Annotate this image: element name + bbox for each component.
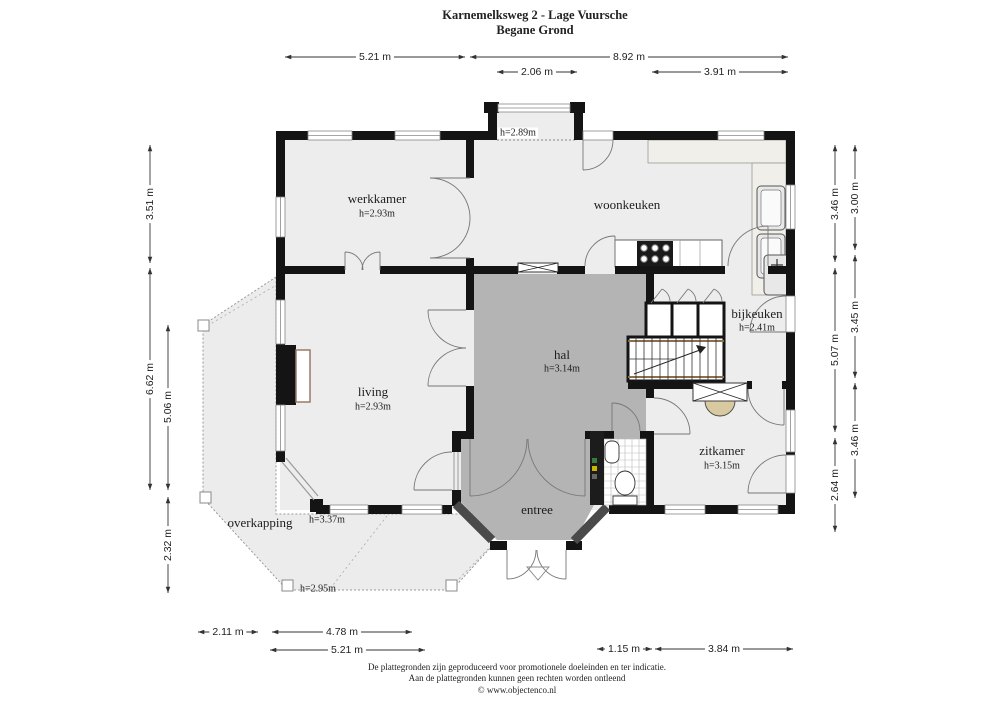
dim-right-inner-3: 2.64 m xyxy=(829,466,841,504)
room-label-overkapping: overkapping xyxy=(228,515,293,531)
dim-right-outer-3: 3.46 m xyxy=(849,421,861,459)
staircase xyxy=(628,337,724,381)
dim-right-outer-2: 3.45 m xyxy=(849,298,861,336)
dim-bottom-5: 3.84 m xyxy=(705,643,743,655)
dim-bottom-1: 2.11 m xyxy=(209,626,246,638)
room-label-living: living xyxy=(358,384,388,400)
dim-bottom-3: 5.21 m xyxy=(328,644,366,656)
dim-left-3: 5.06 m xyxy=(162,388,174,426)
room-height-living: h=2.93m xyxy=(355,402,391,413)
room-height-bijkeuken: h=2.41m xyxy=(739,323,775,334)
footer-line2: Aan de plattegronden kunnen geen rechten… xyxy=(368,673,666,684)
room-label-entree: entree xyxy=(521,502,553,518)
entrance-step xyxy=(527,567,549,580)
bijkeuken-door-opening xyxy=(786,296,795,332)
dim-top-1: 5.21 m xyxy=(356,51,394,63)
dim-left-4: 2.32 m xyxy=(162,526,174,564)
dim-right-inner-2: 5.07 m xyxy=(829,331,841,369)
dim-bottom-4: 1.15 m xyxy=(605,643,643,655)
overkapping-height-edge: h=2.95m xyxy=(300,584,336,595)
hand-basin xyxy=(605,441,619,463)
radiator-hal xyxy=(518,263,558,272)
toilet-room xyxy=(590,431,646,505)
dim-left-1: 3.51 m xyxy=(144,185,156,223)
fireplace-hearth-living xyxy=(296,350,310,402)
room-height-hal: h=3.14m xyxy=(544,364,580,375)
floorplan-svg xyxy=(0,0,1000,707)
room-label-zitkamer: zitkamer xyxy=(699,443,744,459)
dim-top-2: 8.92 m xyxy=(610,51,648,63)
dim-left-2: 6.62 m xyxy=(144,360,156,398)
wc-bowl xyxy=(615,471,635,495)
footer-line1: De plattegronden zijn geproduceerd voor … xyxy=(368,662,666,673)
zitkamer-door-opening xyxy=(786,455,795,493)
dim-right-inner-1: 3.46 m xyxy=(829,185,841,223)
kitchen-door-opening xyxy=(583,131,613,140)
footer-line3: © www.objectenco.nl xyxy=(368,685,666,696)
dim-top-4: 3.91 m xyxy=(701,66,739,78)
room-height-zitkamer: h=3.15m xyxy=(704,461,740,472)
dim-top-3: 2.06 m xyxy=(518,66,556,78)
room-label-hal: hal xyxy=(554,347,570,363)
erker-height: h=2.89m xyxy=(498,128,538,139)
overkapping-height-house: h=3.37m xyxy=(309,515,345,526)
floorplan-page: Karnemelksweg 2 - Lage Vuursche Begane G… xyxy=(0,0,1000,707)
wc-tank xyxy=(613,496,637,505)
room-label-werkkamer: werkkamer xyxy=(348,191,406,207)
dim-right-outer-1: 3.00 m xyxy=(849,179,861,217)
dim-bottom-2: 4.78 m xyxy=(323,626,361,638)
room-label-bijkeuken: bijkeuken xyxy=(731,306,782,322)
footer-disclaimer: De plattegronden zijn geproduceerd voor … xyxy=(368,662,666,696)
room-height-werkkamer: h=2.93m xyxy=(359,209,395,220)
fireplace-living xyxy=(276,345,296,405)
kitchen-island xyxy=(615,240,722,267)
room-label-woonkeuken: woonkeuken xyxy=(594,197,660,213)
